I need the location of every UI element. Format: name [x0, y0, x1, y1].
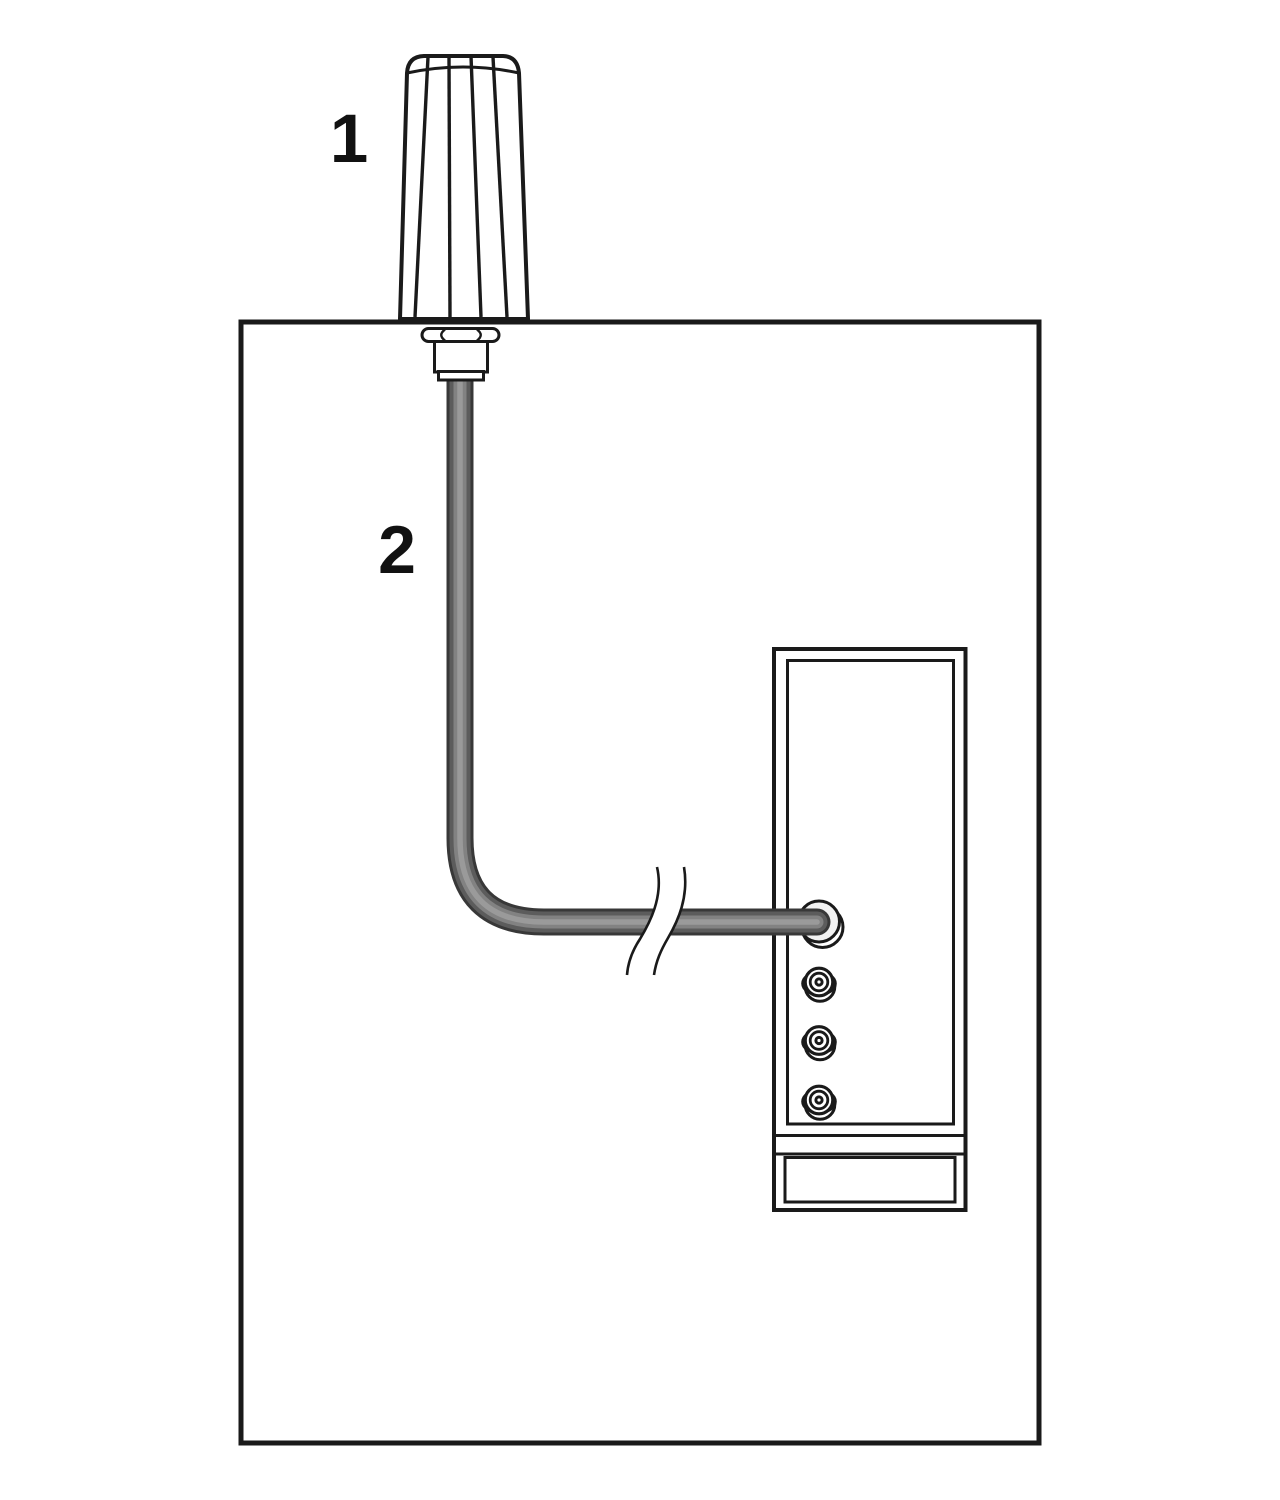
antenna-mounting-nut — [422, 329, 499, 342]
antenna-connector-body — [435, 342, 488, 373]
sma-connector-1 — [803, 968, 836, 1001]
antenna-connector-lip — [439, 372, 484, 381]
callout-1-label: 1 — [330, 100, 368, 177]
antenna — [400, 56, 528, 319]
antenna-mount — [422, 329, 499, 381]
sma-connector-3 — [803, 1086, 836, 1119]
installation-diagram: 1 2 — [0, 0, 1280, 1500]
callout-2-label: 2 — [378, 512, 416, 588]
sma-connector-2 — [803, 1027, 836, 1060]
antenna-body — [400, 56, 528, 319]
